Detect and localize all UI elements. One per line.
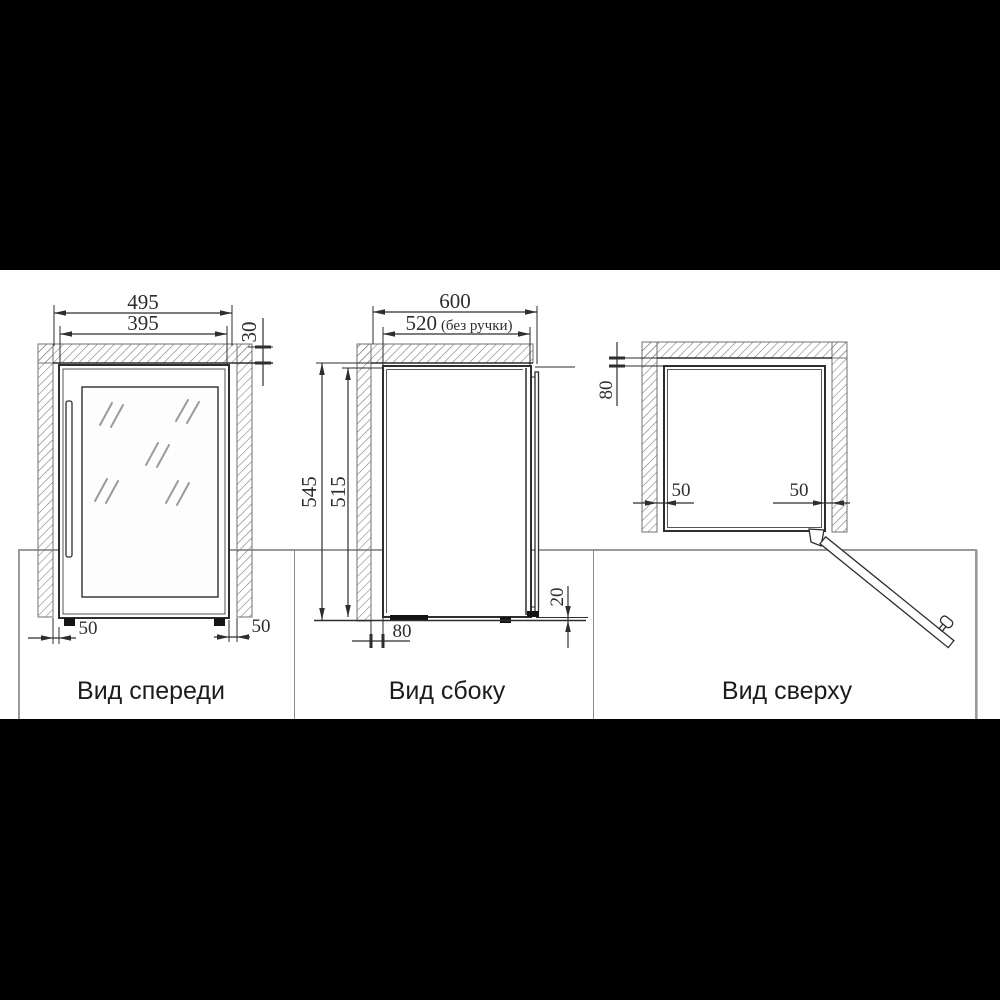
- dim-label-50-left: 50: [672, 480, 691, 501]
- dim-label-515: 515: [326, 476, 350, 508]
- dim-label-50-left: 50: [79, 618, 98, 639]
- dim-label-520: 520(без ручки): [405, 311, 512, 335]
- door-slab: [820, 537, 954, 648]
- wall-hatch-top: [38, 344, 252, 363]
- foot-right: [214, 618, 225, 626]
- top-view-label: Вид сверху: [722, 677, 853, 705]
- front-view-label: Вид спереди: [77, 677, 225, 705]
- foot-door: [527, 611, 539, 617]
- dim-unit-height: 515: [326, 368, 383, 617]
- base-strip: [390, 615, 428, 620]
- open-door: [820, 526, 963, 648]
- foot-left: [64, 618, 75, 626]
- wall-hatch-left: [38, 344, 53, 617]
- dim-label-545: 545: [297, 476, 321, 508]
- dim-label-600: 600: [439, 289, 471, 313]
- dim-floor-clearance: 20: [536, 586, 588, 648]
- top-view: 80 50 50 Вид сверху: [596, 342, 963, 705]
- door-handle-bar: [535, 372, 539, 612]
- dim-rear-clearance: 80: [352, 617, 412, 648]
- dim-label-50-right: 50: [252, 616, 271, 637]
- door-handle: [66, 401, 72, 557]
- side-view-label: Вид сбоку: [389, 677, 506, 705]
- page: { "colors": { "page-bg": "#000000", "pap…: [0, 0, 1000, 1000]
- unit-outline: [383, 366, 531, 617]
- dim-left-clearance: 50: [28, 618, 98, 644]
- dim-label-80: 80: [393, 621, 412, 642]
- dim-label-80: 80: [596, 381, 617, 400]
- glass-door: [82, 387, 218, 597]
- wall-hatch-back: [357, 344, 371, 621]
- front-view: 495 395 30 50: [28, 290, 273, 705]
- wall-hatch-back: [642, 342, 847, 358]
- side-view: 600 520(без ручки) 545 515: [297, 289, 588, 705]
- unit-outline: [664, 366, 825, 531]
- dim-label-20: 20: [547, 588, 568, 607]
- dim-label-395: 395: [127, 311, 159, 335]
- wall-hatch-right: [237, 344, 252, 617]
- dimension-drawing: 495 395 30 50: [0, 0, 1000, 1000]
- dim-label-30: 30: [237, 322, 261, 343]
- dim-label-50-right: 50: [790, 480, 809, 501]
